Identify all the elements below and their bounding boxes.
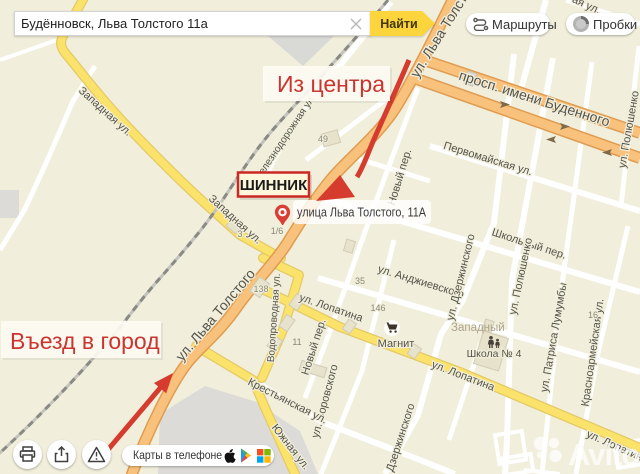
svg-text:Школа № 4: Школа № 4 <box>467 348 522 360</box>
svg-text:Первомайская ул.: Первомайская ул. <box>442 140 534 178</box>
svg-text:146: 146 <box>370 303 385 313</box>
svg-text:49: 49 <box>318 134 328 144</box>
svg-text:Найти: Найти <box>380 17 417 31</box>
svg-text:138: 138 <box>253 284 268 294</box>
svg-text:Западная ул.: Западная ул. <box>76 85 134 139</box>
svg-text:Магнит: Магнит <box>378 338 415 350</box>
svg-text:16: 16 <box>588 310 598 320</box>
svg-text:ул. Дзержинского: ул. Дзержинского <box>379 402 418 474</box>
svg-text:Западный: Западный <box>451 322 505 334</box>
svg-text:Западная ул.: Западная ул. <box>206 193 264 247</box>
svg-text:35: 35 <box>355 276 365 286</box>
svg-text:Из центра: Из центра <box>277 71 385 97</box>
svg-text:11: 11 <box>292 337 301 347</box>
svg-text:ШИННИК: ШИННИК <box>240 177 308 194</box>
svg-text:Avito: Avito <box>568 437 639 472</box>
svg-text:Въезд в город: Въезд в город <box>10 328 160 354</box>
svg-text:ул. Льва Толстого: ул. Льва Толстого <box>172 266 258 364</box>
svg-text:1/6: 1/6 <box>271 226 284 236</box>
svg-text:3: 3 <box>237 229 242 239</box>
svg-text:Железнодорожная ул.: Железнодорожная ул. <box>252 93 319 184</box>
svg-text:улица Льва Толстого, 11А: улица Льва Толстого, 11А <box>297 206 426 220</box>
